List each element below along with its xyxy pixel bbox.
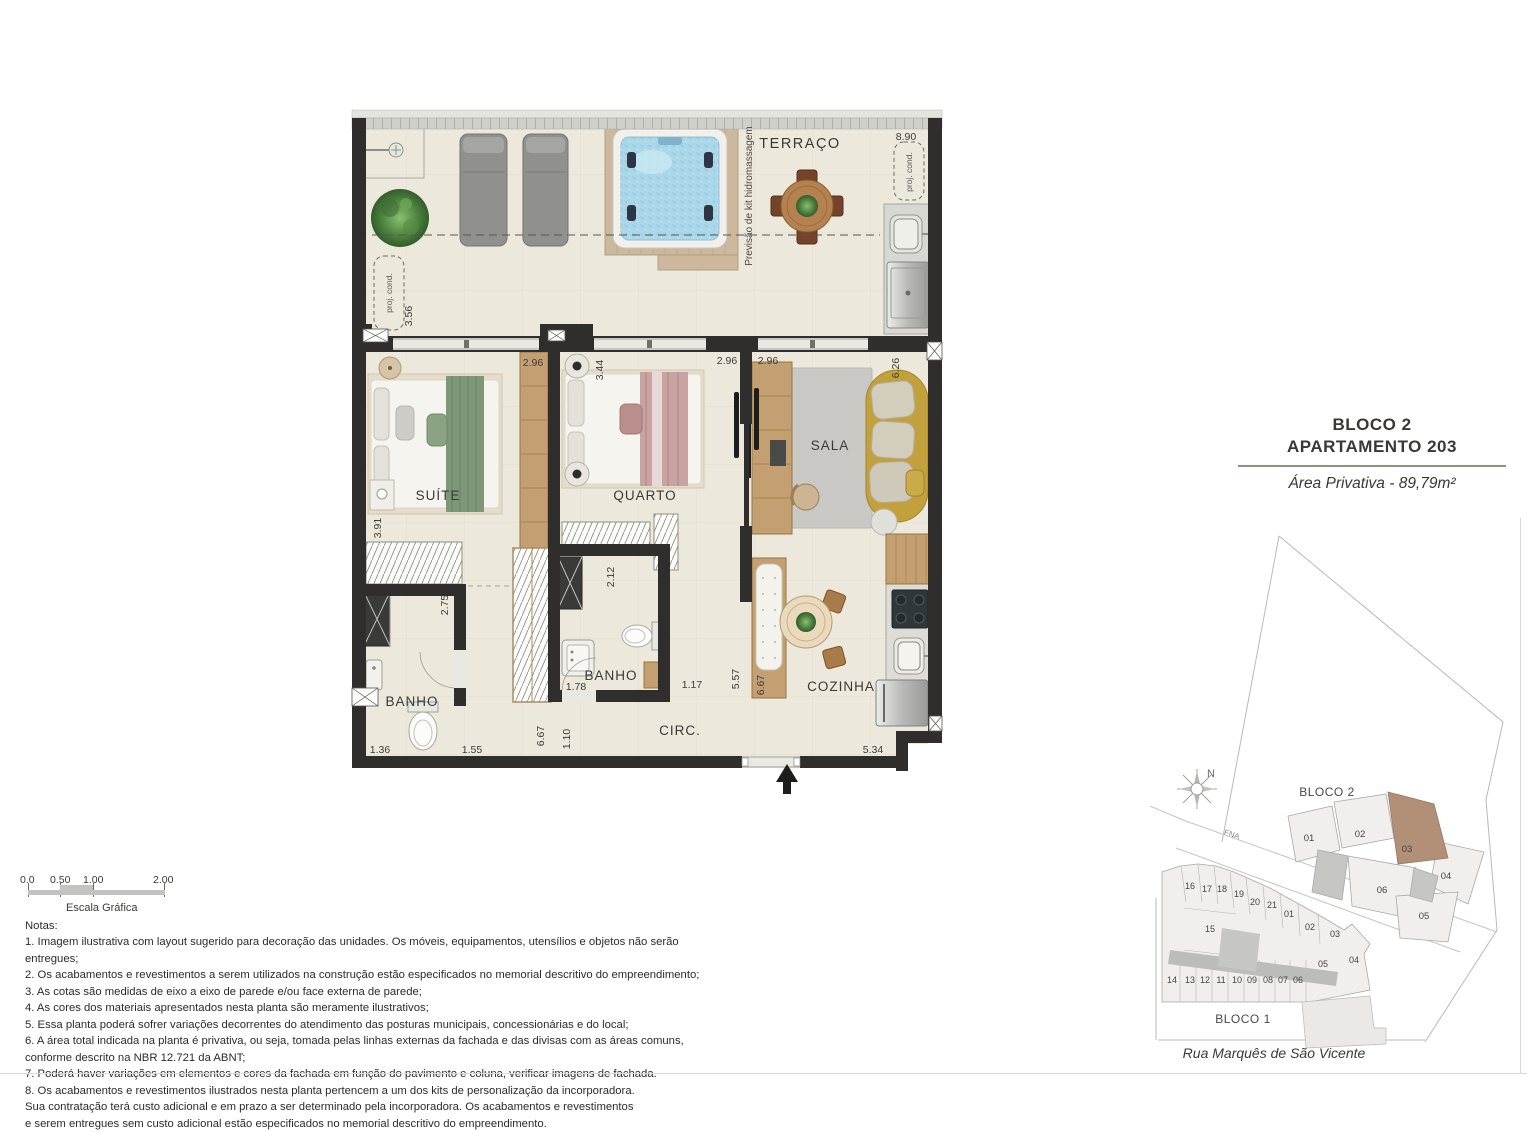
dim-suite-depth: 3.91: [372, 518, 384, 539]
sofa: [866, 370, 928, 522]
title-bloco: BLOCO 2: [1238, 414, 1506, 436]
sheet-border-bottom: [0, 1073, 1527, 1074]
bloco1-label: BLOCO 1: [1215, 1012, 1271, 1026]
notes-heading: Notas:: [25, 918, 735, 934]
note-item: 8. Os acabamentos e revestimentos ilustr…: [25, 1083, 735, 1132]
room-label-bath-social: BANHO: [584, 668, 637, 683]
room-label-bedroom: QUARTO: [613, 488, 676, 503]
dim-bath-suite-width: 1.36: [370, 744, 391, 756]
hot-tub: [605, 122, 738, 270]
unit-number: 04: [1349, 955, 1359, 965]
bedroom-window: [594, 338, 706, 350]
living-window: [758, 338, 868, 350]
dim-circ-width: 1.10: [561, 729, 573, 750]
unit-number: 06: [1293, 975, 1303, 985]
private-area-label: Área Privativa - 89,79m²: [1238, 475, 1506, 493]
unit-number: 15: [1205, 924, 1215, 934]
pouf: [871, 509, 897, 535]
unit-number: 17: [1202, 884, 1212, 894]
hydro-note: Previsão de kit hidromassagem: [744, 126, 755, 266]
plant: [371, 189, 429, 247]
room-label-terrace: TERRAÇO: [759, 136, 840, 152]
room-label-suite: SUÍTE: [416, 488, 461, 503]
room-label-bath-suite: BANHO: [385, 694, 438, 709]
room-label-circulation: CIRC.: [659, 723, 701, 738]
dim-bedroom-depth: 3.44: [594, 360, 606, 381]
note-item: 7. Poderá haver variações em elementos e…: [25, 1066, 735, 1082]
compass-icon: N: [1177, 768, 1217, 809]
note-item: 6. A área total indicada na planta é pri…: [25, 1033, 735, 1066]
dim-bedroom-window: 2.96: [717, 355, 738, 367]
shower: [364, 592, 390, 646]
dim-hall-depth: 5.57: [730, 669, 742, 690]
title-apartamento: APARTAMENTO 203: [1238, 436, 1506, 458]
dim-kitchen-island: 6.67: [755, 675, 767, 696]
highlighted-unit-03: [1388, 792, 1448, 864]
proj-cond-right-label: proj. cond.: [904, 152, 914, 192]
unit-number: 06: [1377, 885, 1388, 896]
dim-closet-width: 1.55: [462, 744, 483, 756]
dim-living-window: 2.96: [758, 355, 779, 367]
shower: [558, 557, 582, 609]
note-item: 4. As cores dos materiais apresentados n…: [25, 1000, 735, 1016]
toilet: [408, 702, 438, 750]
dim-terrace-depth: 3.56: [403, 306, 415, 327]
notes: Notas: 1. Imagem ilustrativa com layout …: [25, 918, 735, 1132]
note-item: 5. Essa planta poderá sofrer variações d…: [25, 1017, 735, 1033]
suite-nightstand: [370, 480, 394, 510]
unit-number: 02: [1355, 829, 1366, 840]
scale-bar: 0.0 0.50 1.00 2.00 Escala Gráfica: [18, 874, 188, 914]
unit-number: 21: [1267, 900, 1277, 910]
unit-number: 10: [1232, 975, 1242, 985]
title-divider: [1238, 465, 1506, 467]
kitchen-cabinet: [886, 534, 932, 584]
suite-window: [393, 338, 539, 350]
dim-hall-width: 1.17: [682, 679, 703, 691]
dim-suite-window: 2.96: [523, 357, 544, 369]
unit-number: 09: [1247, 975, 1257, 985]
unit-number: 03: [1330, 929, 1340, 939]
unit-number: 05: [1419, 911, 1430, 922]
unit-number: 18: [1217, 884, 1227, 894]
note-item: 3. As cotas são medidas de eixo a eixo d…: [25, 984, 735, 1000]
room-label-kitchen: COZINHA: [807, 679, 875, 694]
unit-number: 19: [1234, 889, 1244, 899]
unit-number: 14: [1167, 975, 1177, 985]
street-name: Rua Marquês de São Vicente: [1183, 1045, 1366, 1061]
unit-number: 07: [1278, 975, 1288, 985]
suite-wardrobe: [520, 352, 548, 558]
dim-circ-length: 6.67: [535, 726, 547, 747]
dim-living-depth: 6.26: [890, 358, 902, 379]
unit-number: 02: [1305, 922, 1315, 932]
bath-sink: [366, 660, 382, 690]
entrance-arrow: [776, 764, 798, 794]
unit-number: 08: [1263, 975, 1273, 985]
unit-number: 04: [1441, 871, 1452, 882]
note-item: 1. Imagem ilustrativa com layout sugerid…: [25, 934, 735, 967]
north-label: N: [1207, 768, 1215, 780]
proj-cond-left-label: proj. cond.: [384, 273, 394, 313]
sheet-border-right: [1520, 518, 1521, 1074]
dim-bath-suite-depth: 2.75: [439, 595, 451, 616]
scale-caption: Escala Gráfica: [66, 902, 138, 914]
unit-number: 13: [1185, 975, 1195, 985]
dim-terrace-width: 8.90: [896, 131, 917, 143]
site-plan: N BLOCO 2 BLOCO 1 FNA Rua Marquês de São…: [1145, 515, 1527, 1075]
unit-number: 16: [1185, 881, 1195, 891]
unit-number: 03: [1402, 844, 1413, 855]
unit-number: 12: [1200, 975, 1210, 985]
unit-number: 20: [1250, 897, 1260, 907]
dim-bath-social-depth: 2.12: [605, 567, 617, 588]
floor-plan: proj. cond. proj. cond.: [345, 100, 945, 795]
unit-number: 05: [1318, 959, 1328, 969]
note-item: 2. Os acabamentos e revestimentos a sere…: [25, 967, 735, 983]
bloco2-label: BLOCO 2: [1299, 785, 1355, 799]
dim-kitchen-width: 5.34: [863, 744, 884, 756]
annex-building: [1302, 996, 1386, 1048]
outdoor-counter: [884, 204, 934, 334]
fridge: [876, 680, 928, 726]
title-block: BLOCO 2 APARTAMENTO 203 Área Privativa -…: [1238, 414, 1506, 493]
closet-shelving: [513, 548, 551, 702]
cooktop: [892, 590, 928, 628]
room-label-living: SALA: [811, 438, 850, 453]
unit-number: 01: [1304, 833, 1315, 844]
unit-number: 01: [1284, 909, 1294, 919]
entrance-door: [742, 756, 800, 768]
dim-bath-social-width: 1.78: [566, 681, 587, 693]
unit-number: 11: [1216, 975, 1225, 985]
